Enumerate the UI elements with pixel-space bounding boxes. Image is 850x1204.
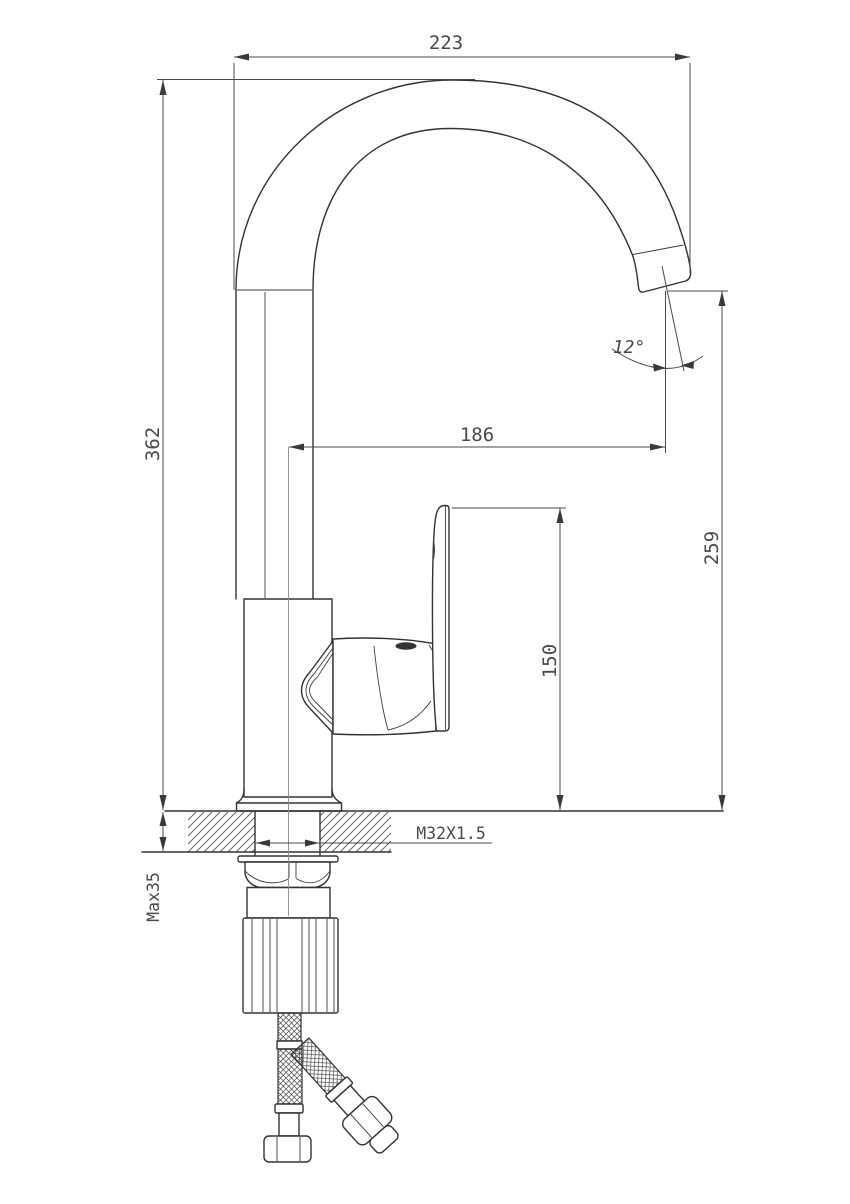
faucet-technical-drawing-page: 223 362 186 259 150 (0, 0, 850, 1204)
counter-hatch-left (188, 812, 255, 852)
vertical-hose-hex-nut (264, 1136, 311, 1162)
washer (238, 856, 338, 862)
dim-text-max35: Max35 (144, 872, 163, 922)
handle-indicator-dot (396, 642, 417, 650)
mounting-hex-nut (245, 862, 330, 888)
handle-hub (333, 638, 436, 735)
vertical-hose-braid-upper (278, 1013, 301, 1041)
handle-lever-blade (432, 506, 449, 732)
dim-text-m32: M32X1.5 (416, 824, 486, 843)
dim-text-186: 186 (460, 424, 494, 446)
dim-text-259: 259 (701, 531, 723, 565)
faucet-technical-drawing: 223 362 186 259 150 (0, 0, 850, 1204)
vertical-hose-collar (275, 1104, 303, 1113)
dim-text-223: 223 (429, 32, 463, 54)
base-plate (237, 803, 342, 811)
dim-text-150: 150 (539, 644, 561, 678)
vertical-hose-tube (279, 1113, 299, 1136)
mounting-hardware (238, 856, 338, 1013)
dim-text-362: 362 (142, 427, 164, 461)
counter-hatch-right (320, 812, 391, 852)
ribbed-mounting-nut (243, 918, 338, 1013)
dim-text-12deg: 12° (613, 337, 646, 358)
